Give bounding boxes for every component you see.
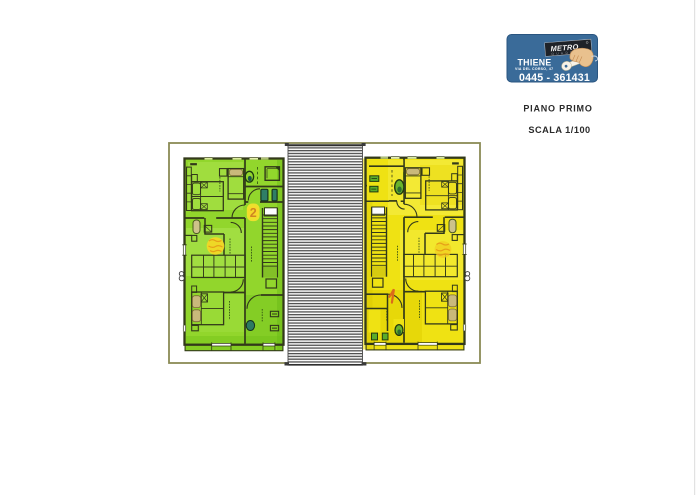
svg-text:PIANO PRIMO: PIANO PRIMO <box>523 104 592 114</box>
svg-text:0445 - 361431: 0445 - 361431 <box>519 72 590 84</box>
svg-text:2: 2 <box>250 206 257 220</box>
svg-text:SCALA 1/100: SCALA 1/100 <box>528 125 590 135</box>
svg-text:VIA DEL CORSO, 47: VIA DEL CORSO, 47 <box>515 67 553 71</box>
svg-text:THIENE: THIENE <box>518 57 552 67</box>
